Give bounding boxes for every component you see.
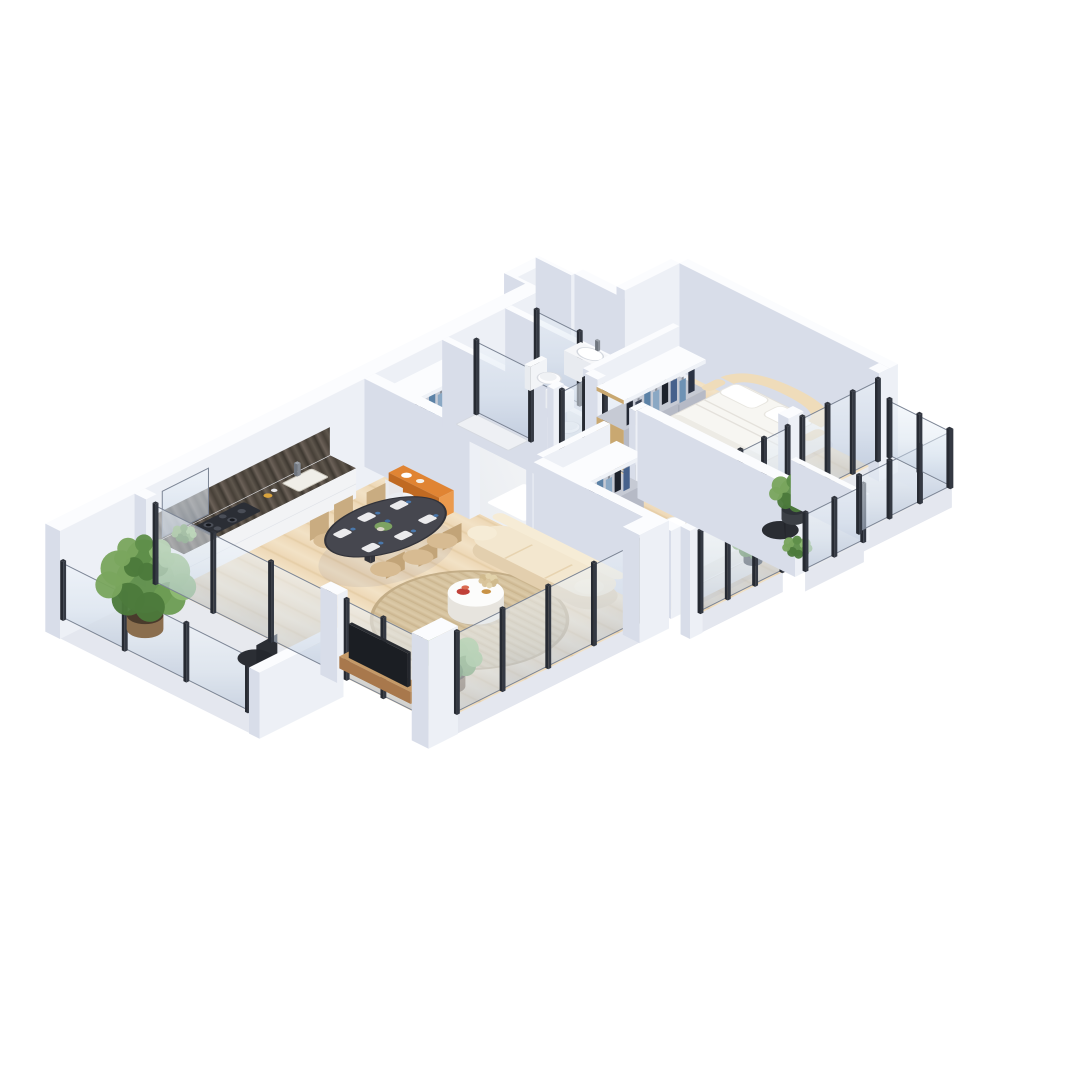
floor-plan-svg: [0, 0, 1080, 1080]
wall-living-front-pier-left: [412, 618, 458, 749]
wall-living-front-pier-right: [623, 512, 669, 643]
bath2-tap: [595, 339, 600, 352]
floor-plan-figure: 3D isometric cutaway floor plan renderin…: [0, 0, 1080, 1080]
kitchen-faucet: [294, 461, 301, 476]
